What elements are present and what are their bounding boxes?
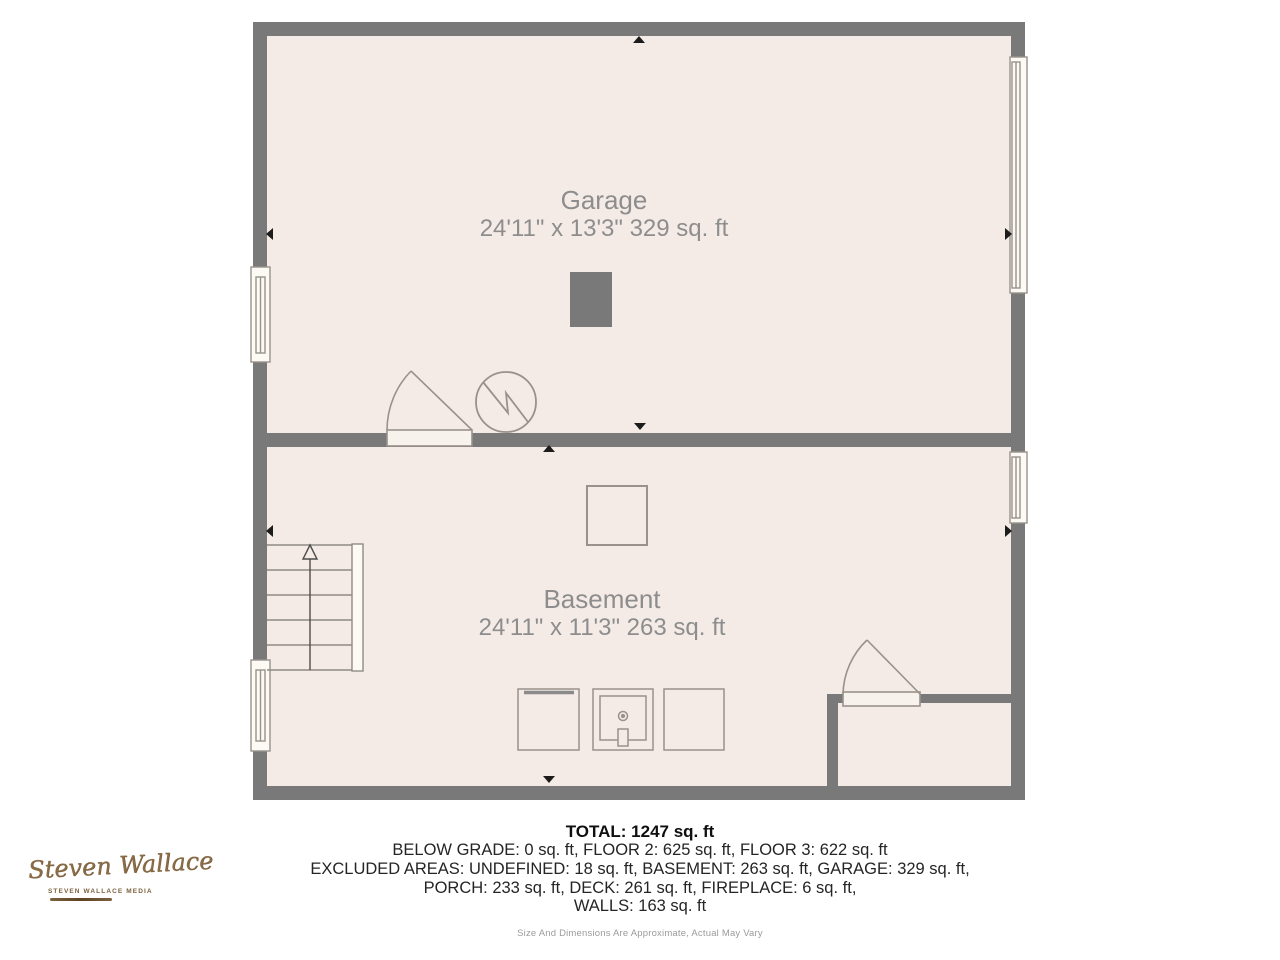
area-line-4: WALLS: 163 sq. ft bbox=[0, 897, 1280, 916]
basement-right-window-icon bbox=[1010, 452, 1027, 523]
garage-left-window-icon bbox=[251, 267, 270, 362]
logo-script-text: Steven Wallace bbox=[27, 848, 188, 884]
garage-floor bbox=[267, 36, 1011, 433]
floorplan-page: Garage 24'11" x 13'3" 329 sq. ft Basemen… bbox=[0, 0, 1280, 960]
utility-fan-icon bbox=[476, 372, 536, 432]
area-line-3: PORCH: 233 sq. ft, DECK: 261 sq. ft, FIR… bbox=[0, 879, 1280, 898]
logo-underline bbox=[50, 898, 112, 901]
floorplan-drawing bbox=[0, 0, 1280, 960]
disclaimer-text: Size And Dimensions Are Approximate, Act… bbox=[0, 928, 1280, 939]
inner-room-left-wall bbox=[827, 703, 838, 786]
garage-post bbox=[570, 272, 612, 327]
total-area-text: TOTAL: 1247 sq. ft bbox=[0, 822, 1280, 841]
basement-left-window-icon bbox=[251, 660, 270, 751]
logo-tagline-text: STEVEN WALLACE MEDIA bbox=[48, 888, 188, 895]
brand-logo: Steven Wallace STEVEN WALLACE MEDIA bbox=[28, 852, 188, 901]
basement-shaft-square bbox=[587, 486, 647, 545]
garage-right-window-icon bbox=[1010, 57, 1027, 293]
